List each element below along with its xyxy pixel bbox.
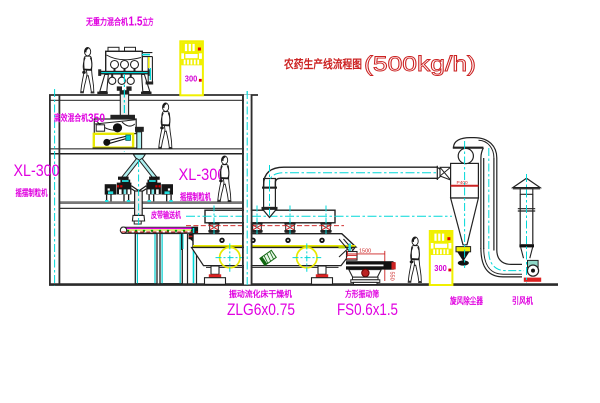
svg-text:FS0.6x1.5: FS0.6x1.5 [337,300,398,319]
svg-text:皮带输送机: 皮带输送机 [150,210,181,220]
svg-text:ZLG6x0.75: ZLG6x0.75 [227,300,295,319]
svg-text:立方: 立方 [143,16,154,27]
svg-text:1500: 1500 [359,249,371,255]
svg-text:1.5: 1.5 [129,15,143,29]
svg-text:无重力混合机: 无重力混合机 [85,16,128,27]
svg-text:350: 350 [88,111,105,125]
svg-text:农药生产线流程图: 农药生产线流程图 [283,57,362,71]
svg-text:摇摆制粒机: 摇摆制粒机 [16,187,48,198]
svg-text:XL-300: XL-300 [14,161,60,180]
svg-text:(500kg/h): (500kg/h) [364,52,476,76]
svg-text:高效混合机: 高效混合机 [54,112,88,123]
svg-text:摇摆制粒机: 摇摆制粒机 [180,191,211,202]
svg-text:XL-300: XL-300 [179,165,226,184]
svg-text:旋风除尘器: 旋风除尘器 [449,295,483,306]
svg-text:P400: P400 [457,180,469,186]
svg-text:振动流化床干燥机: 振动流化床干燥机 [229,289,292,299]
svg-text:550: 550 [389,272,395,281]
svg-text:引风机: 引风机 [512,295,533,306]
svg-text:方形振动筛: 方形振动筛 [345,289,379,299]
